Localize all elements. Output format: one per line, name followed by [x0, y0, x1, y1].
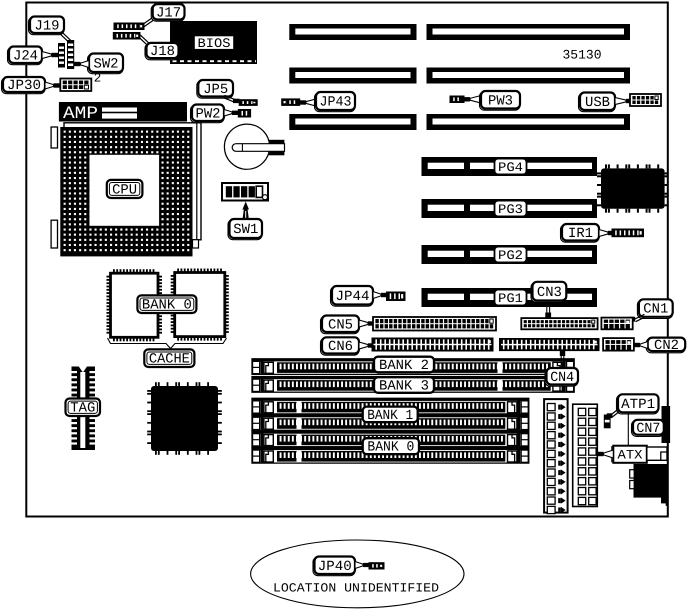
svg-text:PG4: PG4	[498, 160, 523, 175]
svg-text:ATP1: ATP1	[621, 397, 655, 413]
svg-text:CACHE: CACHE	[149, 352, 190, 368]
svg-text:J18: J18	[150, 44, 175, 60]
svg-text:JP44: JP44	[336, 289, 370, 305]
svg-text:JP30: JP30	[7, 78, 41, 94]
svg-text:BANK 3: BANK 3	[379, 378, 429, 394]
svg-text:BANK 1: BANK 1	[367, 408, 413, 424]
svg-text:SW1: SW1	[233, 222, 258, 238]
svg-text:LOCATION UNIDENTIFIED: LOCATION UNIDENTIFIED	[273, 582, 439, 596]
svg-text:BANK 0: BANK 0	[142, 298, 192, 314]
svg-text:IR1: IR1	[568, 226, 593, 242]
svg-text:JP43: JP43	[320, 95, 352, 111]
svg-text:PG2: PG2	[498, 248, 523, 263]
svg-text:PG3: PG3	[498, 202, 523, 217]
svg-text:35130: 35130	[563, 48, 602, 63]
svg-text:2: 2	[94, 72, 102, 86]
svg-text:CN6: CN6	[328, 339, 353, 355]
svg-text:BIOS: BIOS	[198, 36, 231, 51]
svg-text:PW2: PW2	[196, 106, 221, 122]
svg-text:CPU: CPU	[112, 182, 137, 198]
svg-text:JP5: JP5	[203, 82, 228, 98]
svg-text:J24: J24	[13, 48, 38, 64]
svg-text:CN5: CN5	[328, 317, 353, 333]
svg-text:CN2: CN2	[654, 338, 679, 354]
svg-text:ATX: ATX	[618, 448, 643, 463]
svg-text:AMP: AMP	[63, 104, 98, 124]
svg-text:USB: USB	[585, 95, 610, 111]
svg-text:J17: J17	[156, 5, 181, 21]
svg-text:SW2: SW2	[94, 56, 119, 72]
svg-text:CN1: CN1	[643, 302, 668, 318]
svg-text:CN3: CN3	[537, 285, 562, 301]
svg-text:BANK 2: BANK 2	[379, 358, 429, 374]
svg-text:J19: J19	[35, 18, 60, 34]
svg-text:PW3: PW3	[488, 93, 513, 109]
svg-text:CN7: CN7	[636, 421, 660, 437]
svg-text:JP40: JP40	[318, 559, 352, 575]
svg-text:TAG: TAG	[70, 401, 95, 417]
svg-text:BANK 0: BANK 0	[367, 440, 414, 456]
svg-text:PG1: PG1	[498, 291, 523, 306]
svg-text:CN4: CN4	[550, 370, 574, 386]
